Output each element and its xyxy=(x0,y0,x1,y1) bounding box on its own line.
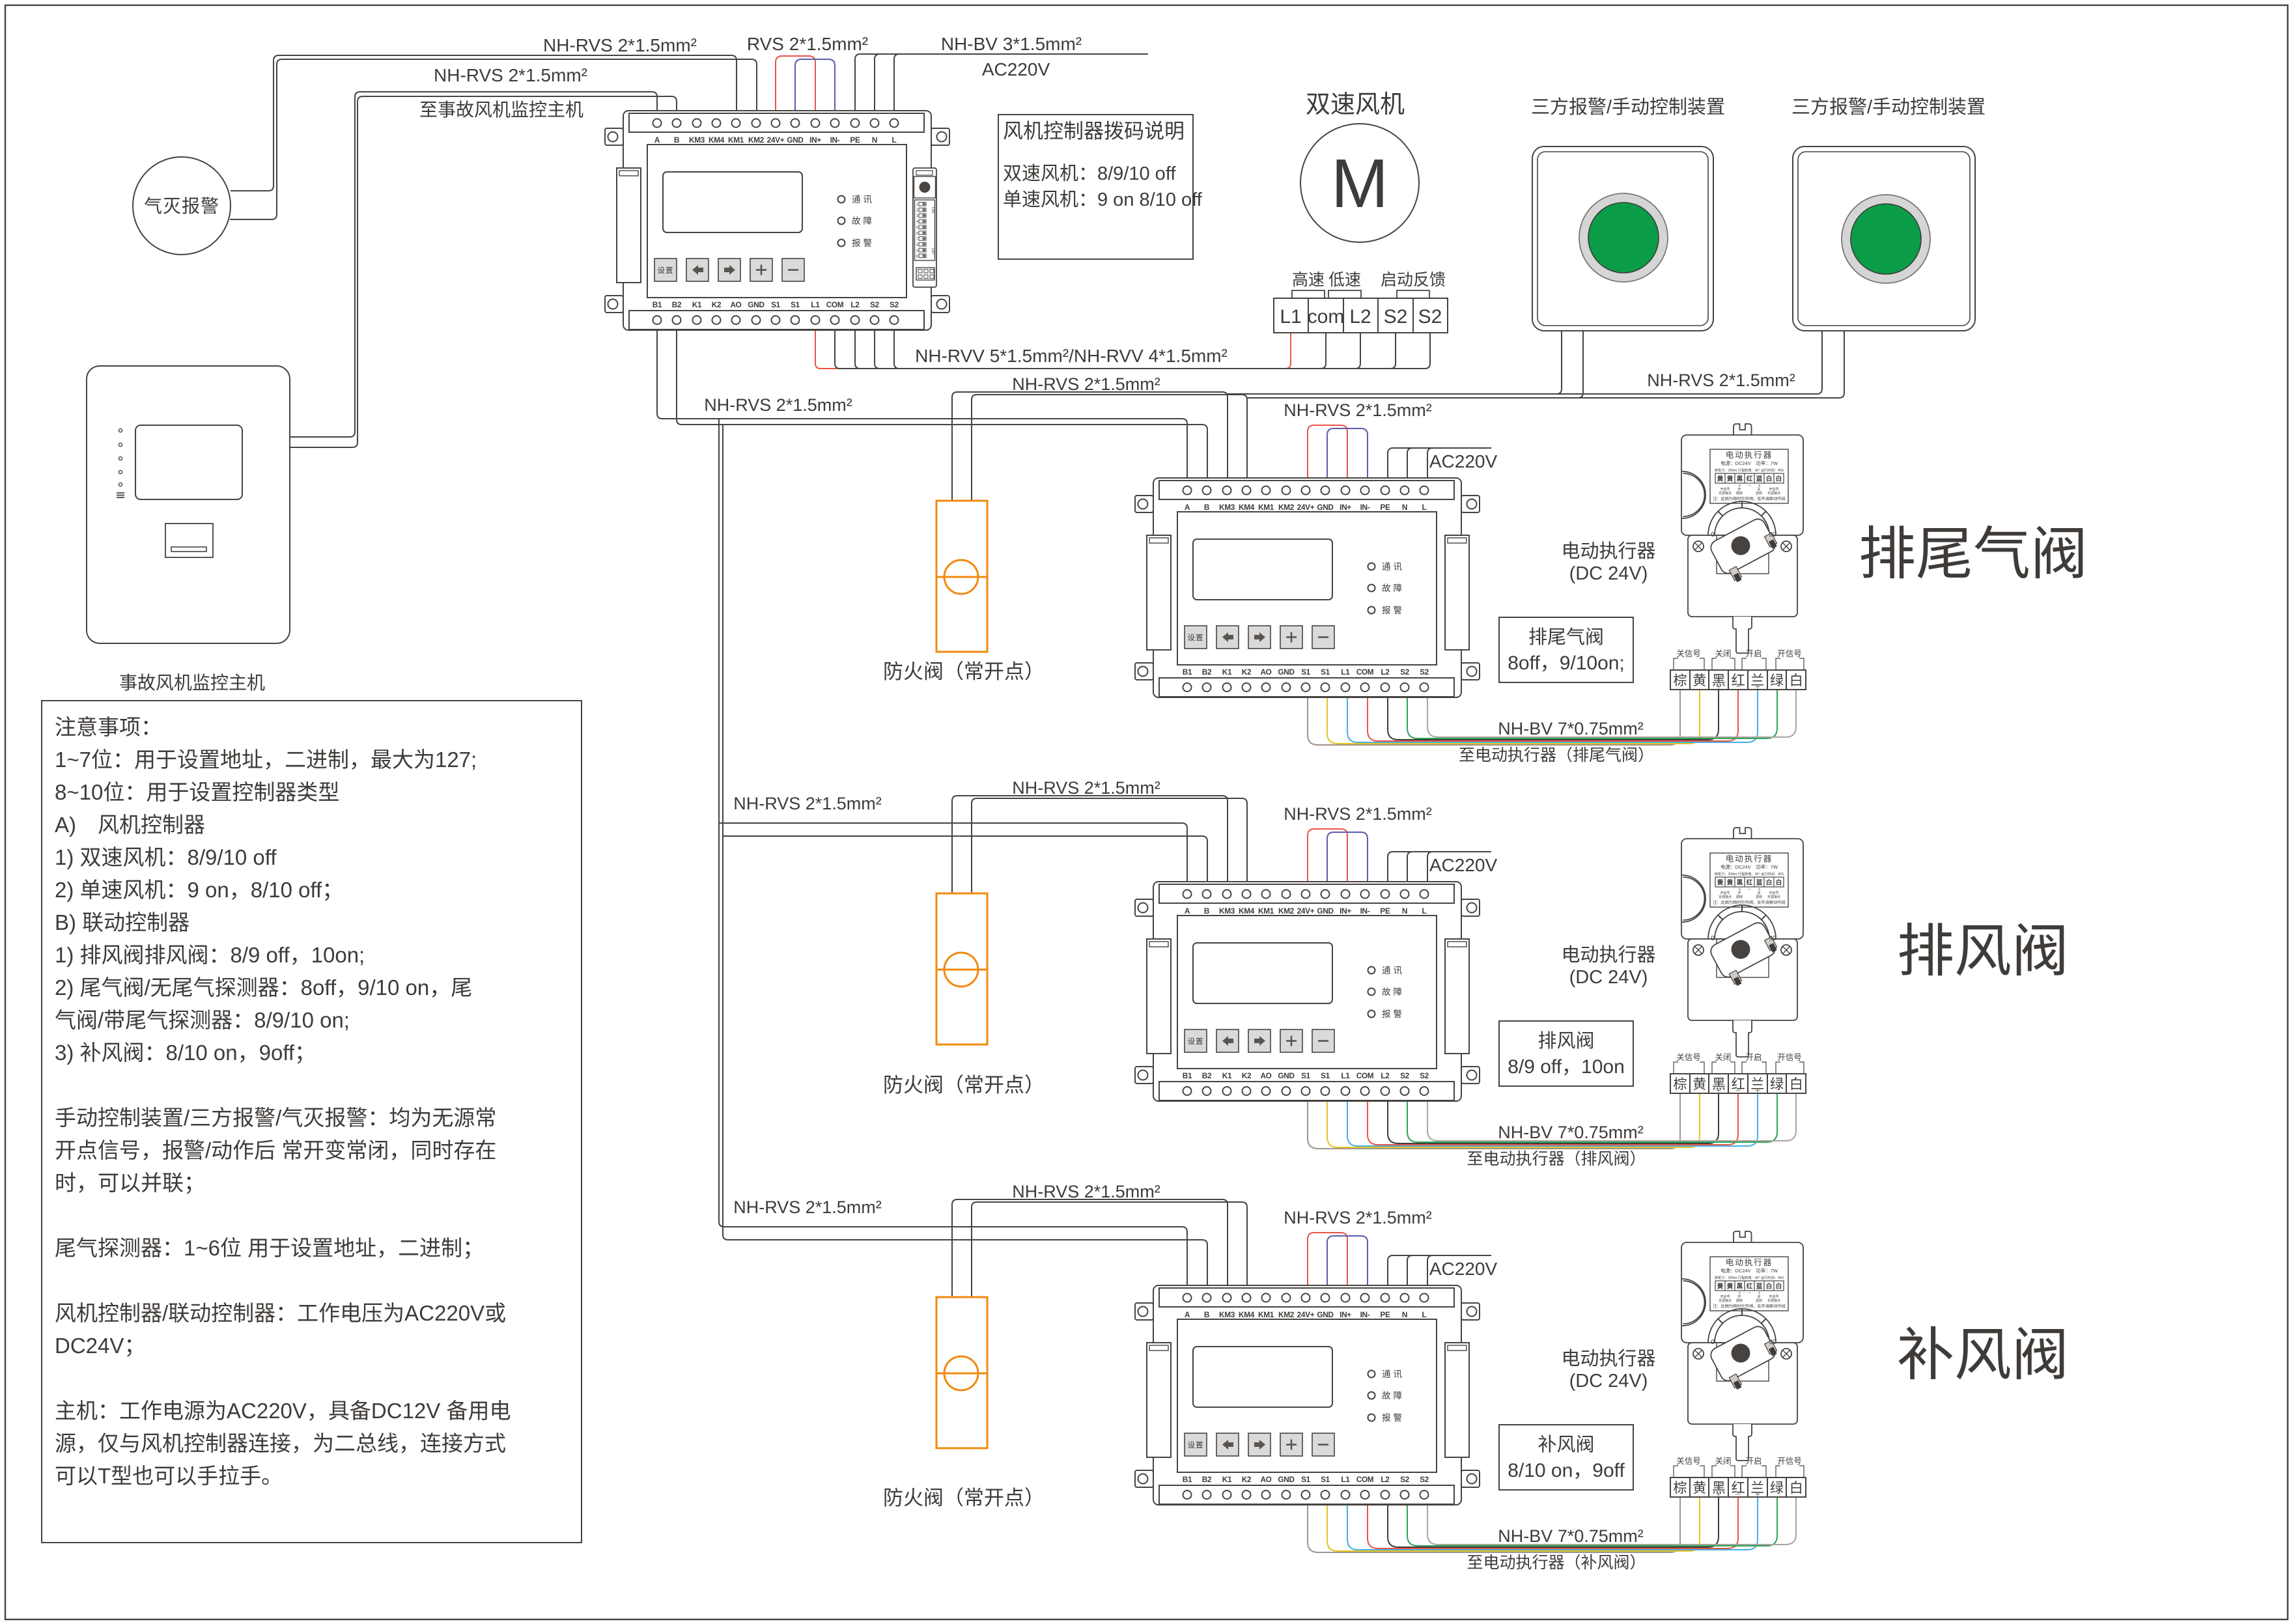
svg-text:NH-BV 3*1.5mm²: NH-BV 3*1.5mm² xyxy=(941,34,1082,54)
svg-text:电源：DC24V 功率：7W: 电源：DC24V 功率：7W xyxy=(1720,1267,1778,1274)
svg-text:S2: S2 xyxy=(1418,306,1442,328)
svg-text:NH-BV 7*0.75mm²: NH-BV 7*0.75mm² xyxy=(1498,1526,1644,1546)
svg-text:1) 排风阀排风阀：8/9 off，10on;: 1) 排风阀排风阀：8/9 off，10on; xyxy=(55,943,365,967)
svg-text:无源接点: 无源接点 xyxy=(1767,1298,1780,1303)
svg-text:0: 0 xyxy=(1711,531,1715,539)
svg-text:三方报警/手动控制装置: 三方报警/手动控制装置 xyxy=(1531,96,1725,118)
svg-text:黄: 黄 xyxy=(1717,879,1724,887)
svg-text:NH-RVS 2*1.5mm²: NH-RVS 2*1.5mm² xyxy=(1012,778,1160,798)
svg-text:NH-RVS 2*1.5mm²: NH-RVS 2*1.5mm² xyxy=(1012,374,1160,394)
svg-text:L1: L1 xyxy=(1280,306,1301,328)
svg-text:－: － xyxy=(1735,684,1741,690)
svg-text:＋: ＋ xyxy=(1754,1087,1760,1094)
svg-text:＋: ＋ xyxy=(1715,1087,1721,1094)
svg-text:－: － xyxy=(1747,888,1751,892)
svg-text:S2: S2 xyxy=(1384,306,1408,328)
svg-text:双速风机: 双速风机 xyxy=(1306,91,1405,119)
svg-text:防火阀（常开点）: 防火阀（常开点） xyxy=(883,1487,1045,1509)
svg-text:关闭: 关闭 xyxy=(1715,649,1731,658)
svg-text:2) 尾气阀/无尾气探测器：8off，9/10 on，尾: 2) 尾气阀/无尾气探测器：8off，9/10 on，尾 xyxy=(55,975,472,1000)
svg-text:至电动执行器（补风阀）: 至电动执行器（补风阀） xyxy=(1467,1554,1646,1572)
svg-text:－: － xyxy=(1747,1292,1751,1296)
svg-text:顺转: 顺转 xyxy=(1736,895,1743,899)
svg-text:电动执行器: 电动执行器 xyxy=(1561,540,1655,562)
svg-text:红: 红 xyxy=(1747,1283,1753,1291)
svg-text:AC220V: AC220V xyxy=(1429,1259,1498,1279)
svg-text:(DC 24V): (DC 24V) xyxy=(1569,563,1648,584)
svg-text:2: 2 xyxy=(916,208,918,212)
svg-text:黑: 黑 xyxy=(1737,1283,1743,1291)
svg-text:6: 6 xyxy=(916,232,918,236)
svg-text:防火阀（常开点）: 防火阀（常开点） xyxy=(883,660,1045,683)
svg-text:NH-BV 7*0.75mm²: NH-BV 7*0.75mm² xyxy=(1498,719,1644,738)
svg-text:＋: ＋ xyxy=(1715,684,1721,690)
svg-text:逆转: 逆转 xyxy=(1756,491,1762,496)
svg-text:开信号: 开信号 xyxy=(1720,1295,1730,1299)
svg-text:逆转: 逆转 xyxy=(1756,1298,1762,1303)
svg-text:－: － xyxy=(1747,484,1751,488)
svg-text:排风阀: 排风阀 xyxy=(1897,919,2069,983)
svg-text:7: 7 xyxy=(916,238,918,242)
svg-text:至事故风机监控主机: 至事故风机监控主机 xyxy=(419,100,583,120)
svg-text:M: M xyxy=(1331,145,1388,222)
svg-text:8/10 on，9off: 8/10 on，9off xyxy=(1508,1460,1625,1481)
svg-text:至电动执行器（排尾气阀）: 至电动执行器（排尾气阀） xyxy=(1459,746,1654,764)
svg-text:红: 红 xyxy=(1747,475,1753,483)
svg-text:电动执行器: 电动执行器 xyxy=(1726,854,1773,863)
svg-text:2) 单速风机：9 on，8/10 off；: 2) 单速风机：9 on，8/10 off； xyxy=(55,878,343,902)
svg-text:关: 关 xyxy=(1757,487,1760,492)
svg-text:逆转: 逆转 xyxy=(1756,895,1762,899)
svg-text:转矩力：20Nm 行程转角：90° 运行时间：45S: 转矩力：20Nm 行程转角：90° 运行时间：45S xyxy=(1715,871,1784,876)
svg-text:顺转: 顺转 xyxy=(1736,491,1743,496)
svg-text:NH-RVS 2*1.5mm²: NH-RVS 2*1.5mm² xyxy=(543,35,697,55)
svg-text:NH-RVS 2*1.5mm²: NH-RVS 2*1.5mm² xyxy=(434,65,587,85)
svg-text:开信号: 开信号 xyxy=(1769,891,1778,895)
svg-text:可以T型也可以手拉手。: 可以T型也可以手拉手。 xyxy=(55,1464,283,1488)
svg-text:A) 风机控制器: A) 风机控制器 xyxy=(55,813,205,837)
svg-text:开信号: 开信号 xyxy=(1777,1457,1802,1466)
svg-text:无源接点: 无源接点 xyxy=(1719,895,1732,899)
svg-text:白: 白 xyxy=(1790,673,1803,688)
svg-text:8~10位：用于设置控制器类型: 8~10位：用于设置控制器类型 xyxy=(55,780,339,804)
svg-text:电动执行器: 电动执行器 xyxy=(1726,451,1773,460)
svg-text:NH-RVS 2*1.5mm²: NH-RVS 2*1.5mm² xyxy=(1284,804,1432,824)
svg-text:高速: 高速 xyxy=(1292,271,1325,289)
svg-text:(DC 24V): (DC 24V) xyxy=(1569,967,1648,988)
svg-text:尾气探测器：1~6位 用于设置地址，二进制；: 尾气探测器：1~6位 用于设置地址，二进制； xyxy=(55,1236,484,1260)
svg-text:蓝: 蓝 xyxy=(1756,1283,1763,1291)
svg-text:1) 双速风机：8/9/10 off: 1) 双速风机：8/9/10 off xyxy=(55,845,277,869)
svg-text:关: 关 xyxy=(1757,891,1760,895)
svg-text:黑: 黑 xyxy=(1737,880,1743,887)
svg-text:开信号: 开信号 xyxy=(1769,487,1778,492)
svg-text:黄: 黄 xyxy=(1692,1481,1706,1496)
svg-text:无源接点: 无源接点 xyxy=(1719,1298,1732,1303)
svg-text:DC24V；: DC24V； xyxy=(55,1334,145,1358)
svg-text:5: 5 xyxy=(916,226,918,230)
svg-text:3: 3 xyxy=(916,214,918,218)
svg-text:4: 4 xyxy=(916,220,918,224)
svg-text:B) 联动控制器: B) 联动控制器 xyxy=(55,910,190,934)
svg-text:L2: L2 xyxy=(1349,306,1371,328)
svg-text:黄: 黄 xyxy=(1717,475,1724,483)
svg-text:手动控制装置/三方报警/气灭报警：均为无源常: 手动控制装置/三方报警/气灭报警：均为无源常 xyxy=(55,1106,496,1130)
svg-text:0: 0 xyxy=(1711,1339,1715,1346)
svg-text:绿: 绿 xyxy=(1770,673,1784,688)
svg-text:0: 0 xyxy=(1711,935,1715,942)
svg-text:com: com xyxy=(1308,306,1345,328)
svg-text:棕: 棕 xyxy=(1674,1077,1687,1092)
svg-text:三方报警/手动控制装置: 三方报警/手动控制装置 xyxy=(1791,96,1986,118)
svg-text:蓝: 蓝 xyxy=(1756,475,1763,483)
svg-text:双速风机：8/9/10 off: 双速风机：8/9/10 off xyxy=(1003,163,1176,184)
svg-text:AC220V: AC220V xyxy=(1429,451,1498,471)
svg-text:白: 白 xyxy=(1766,879,1773,887)
svg-text:绿: 绿 xyxy=(1770,1481,1784,1496)
svg-text:低速: 低速 xyxy=(1328,271,1361,289)
svg-text:补风阀: 补风阀 xyxy=(1538,1434,1594,1455)
svg-text:黄: 黄 xyxy=(1692,1077,1706,1092)
svg-text:开启: 开启 xyxy=(1745,649,1762,658)
svg-text:RVS 2*1.5mm²: RVS 2*1.5mm² xyxy=(747,34,868,54)
svg-text:白: 白 xyxy=(1766,1283,1773,1291)
svg-text:白: 白 xyxy=(1776,1283,1782,1291)
svg-text:排尾气阀: 排尾气阀 xyxy=(1528,626,1604,648)
svg-text:无源接点: 无源接点 xyxy=(1767,491,1780,496)
svg-text:1: 1 xyxy=(916,203,918,207)
svg-text:电动执行器: 电动执行器 xyxy=(1726,1258,1773,1267)
svg-text:注：此图为顺时针开阀，反开调换动作线: 注：此图为顺时针开阀，反开调换动作线 xyxy=(1713,496,1785,501)
svg-text:关闭: 关闭 xyxy=(1715,1457,1731,1466)
svg-text:黄: 黄 xyxy=(1727,879,1734,887)
svg-text:8off，9/10on;: 8off，9/10on; xyxy=(1508,652,1625,674)
svg-text:单速风机：9 on 8/10 off: 单速风机：9 on 8/10 off xyxy=(1003,189,1203,210)
svg-text:AC220V: AC220V xyxy=(982,59,1050,79)
svg-text:绿: 绿 xyxy=(1770,1077,1784,1092)
svg-text:DIP: DIP xyxy=(931,248,934,255)
svg-text:－: － xyxy=(1735,1087,1741,1094)
svg-text:8/9 off，10on: 8/9 off，10on xyxy=(1508,1056,1625,1078)
svg-text:电动执行器: 电动执行器 xyxy=(1561,944,1655,966)
svg-text:开信号: 开信号 xyxy=(1777,1053,1802,1062)
svg-text:黄: 黄 xyxy=(1727,475,1734,483)
svg-text:NH-RVS 2*1.5mm²: NH-RVS 2*1.5mm² xyxy=(1012,1182,1160,1201)
svg-text:主机：工作电源为AC220V，具备DC12V 备用电: 主机：工作电源为AC220V，具备DC12V 备用电 xyxy=(55,1399,511,1423)
svg-text:90: 90 xyxy=(1769,531,1776,539)
svg-text:风机控制器/联动控制器：工作电压为AC220V或: 风机控制器/联动控制器：工作电压为AC220V或 xyxy=(55,1301,506,1325)
svg-text:排风阀: 排风阀 xyxy=(1538,1030,1594,1052)
svg-text:开信号: 开信号 xyxy=(1720,487,1730,492)
svg-text:红: 红 xyxy=(1747,879,1753,887)
svg-text:NH-BV 7*0.75mm²: NH-BV 7*0.75mm² xyxy=(1498,1123,1644,1142)
svg-text:顺转: 顺转 xyxy=(1736,1298,1743,1303)
svg-text:NH-RVS 2*1.5mm²: NH-RVS 2*1.5mm² xyxy=(1284,1208,1432,1227)
svg-text:NH-RVS 2*1.5mm²: NH-RVS 2*1.5mm² xyxy=(733,794,882,813)
svg-text:NH-RVS 2*1.5mm²: NH-RVS 2*1.5mm² xyxy=(1647,371,1795,390)
svg-text:－: － xyxy=(1735,1491,1741,1498)
svg-text:时，可以并联；: 时，可以并联； xyxy=(55,1171,205,1195)
svg-text:ON: ON xyxy=(931,207,934,213)
svg-text:白: 白 xyxy=(1776,475,1782,483)
svg-text:关信号: 关信号 xyxy=(1676,1053,1701,1062)
svg-text:气阀/带尾气探测器：8/9/10 on;: 气阀/带尾气探测器：8/9/10 on; xyxy=(55,1008,350,1032)
svg-text:注意事项：: 注意事项： xyxy=(55,715,162,739)
svg-text:无源接点: 无源接点 xyxy=(1767,895,1780,899)
svg-text:源，仅与风机控制器连接，为二总线，连接方式: 源，仅与风机控制器连接，为二总线，连接方式 xyxy=(55,1431,506,1455)
svg-text:电源：DC24V 功率：7W: 电源：DC24V 功率：7W xyxy=(1720,460,1778,466)
svg-text:白: 白 xyxy=(1776,879,1782,887)
svg-text:气灭报警: 气灭报警 xyxy=(144,196,219,216)
svg-text:白: 白 xyxy=(1790,1481,1803,1496)
svg-text:补风阀: 补风阀 xyxy=(1897,1323,2069,1387)
svg-text:至电动执行器（排风阀）: 至电动执行器（排风阀） xyxy=(1467,1150,1646,1168)
svg-text:棕: 棕 xyxy=(1674,673,1687,688)
svg-text:白: 白 xyxy=(1766,475,1773,483)
svg-text:黄: 黄 xyxy=(1717,1283,1724,1291)
svg-text:蓝: 蓝 xyxy=(1756,879,1763,887)
svg-text:电动执行器: 电动执行器 xyxy=(1561,1348,1655,1369)
svg-text:防火阀（常开点）: 防火阀（常开点） xyxy=(883,1074,1045,1097)
svg-text:开点信号，报警/动作后 常开变常闭，同时存在: 开点信号，报警/动作后 常开变常闭，同时存在 xyxy=(55,1138,496,1162)
svg-text:NH-RVV 5*1.5mm²/NH-RVV 4*1.5mm: NH-RVV 5*1.5mm²/NH-RVV 4*1.5mm² xyxy=(915,346,1228,366)
svg-text:关: 关 xyxy=(1757,1295,1760,1299)
svg-text:注：此图为顺时针开阀，反开调换动作线: 注：此图为顺时针开阀，反开调换动作线 xyxy=(1713,900,1785,905)
svg-text:风机控制器拨码说明: 风机控制器拨码说明 xyxy=(1003,120,1185,143)
svg-text:开信号: 开信号 xyxy=(1769,1295,1778,1299)
svg-text:黄: 黄 xyxy=(1692,673,1706,688)
svg-text:关闭: 关闭 xyxy=(1715,1053,1731,1062)
svg-text:开信号: 开信号 xyxy=(1777,649,1802,658)
svg-text:8: 8 xyxy=(916,243,918,247)
svg-text:90: 90 xyxy=(1769,935,1776,942)
svg-text:开启: 开启 xyxy=(1745,1053,1762,1062)
svg-text:无源接点: 无源接点 xyxy=(1719,491,1732,496)
svg-text:NH-RVS 2*1.5mm²: NH-RVS 2*1.5mm² xyxy=(1284,400,1432,420)
svg-text:排尾气阀: 排尾气阀 xyxy=(1859,522,2088,586)
svg-text:9: 9 xyxy=(916,249,918,253)
svg-text:关信号: 关信号 xyxy=(1676,1457,1701,1466)
svg-text:＋: ＋ xyxy=(1754,684,1760,690)
svg-text:开信号: 开信号 xyxy=(1720,891,1730,895)
svg-text:电源：DC24V 功率：7W: 电源：DC24V 功率：7W xyxy=(1720,863,1778,870)
svg-text:黄: 黄 xyxy=(1727,1283,1734,1291)
svg-text:事故风机监控主机: 事故风机监控主机 xyxy=(119,673,265,693)
svg-text:注：此图为顺时针开阀，反开调换动作线: 注：此图为顺时针开阀，反开调换动作线 xyxy=(1713,1304,1785,1309)
svg-text:3) 补风阀：8/10 on，9off；: 3) 补风阀：8/10 on，9off； xyxy=(55,1041,316,1065)
svg-text:黑: 黑 xyxy=(1737,476,1743,483)
svg-text:转矩力：20Nm 行程转角：90° 运行时间：45S: 转矩力：20Nm 行程转角：90° 运行时间：45S xyxy=(1715,1275,1784,1280)
svg-text:＋: ＋ xyxy=(1754,1491,1760,1498)
svg-text:白: 白 xyxy=(1790,1077,1803,1092)
svg-text:NH-RVS 2*1.5mm²: NH-RVS 2*1.5mm² xyxy=(733,1197,882,1217)
svg-text:＋: ＋ xyxy=(1715,1491,1721,1498)
svg-text:AC220V: AC220V xyxy=(1429,855,1498,875)
svg-text:关信号: 关信号 xyxy=(1676,649,1701,658)
svg-text:转矩力：20Nm 行程转角：90° 运行时间：45S: 转矩力：20Nm 行程转角：90° 运行时间：45S xyxy=(1715,468,1784,473)
svg-text:90: 90 xyxy=(1769,1339,1776,1346)
svg-text:启动反馈: 启动反馈 xyxy=(1381,271,1446,289)
svg-text:棕: 棕 xyxy=(1674,1481,1687,1496)
svg-text:NH-RVS 2*1.5mm²: NH-RVS 2*1.5mm² xyxy=(704,395,852,415)
svg-text:10: 10 xyxy=(915,255,919,259)
svg-text:1~7位：用于设置地址，二进制，最大为127;: 1~7位：用于设置地址，二进制，最大为127; xyxy=(55,748,477,772)
svg-text:(DC 24V): (DC 24V) xyxy=(1569,1371,1648,1392)
svg-text:开启: 开启 xyxy=(1745,1457,1762,1466)
